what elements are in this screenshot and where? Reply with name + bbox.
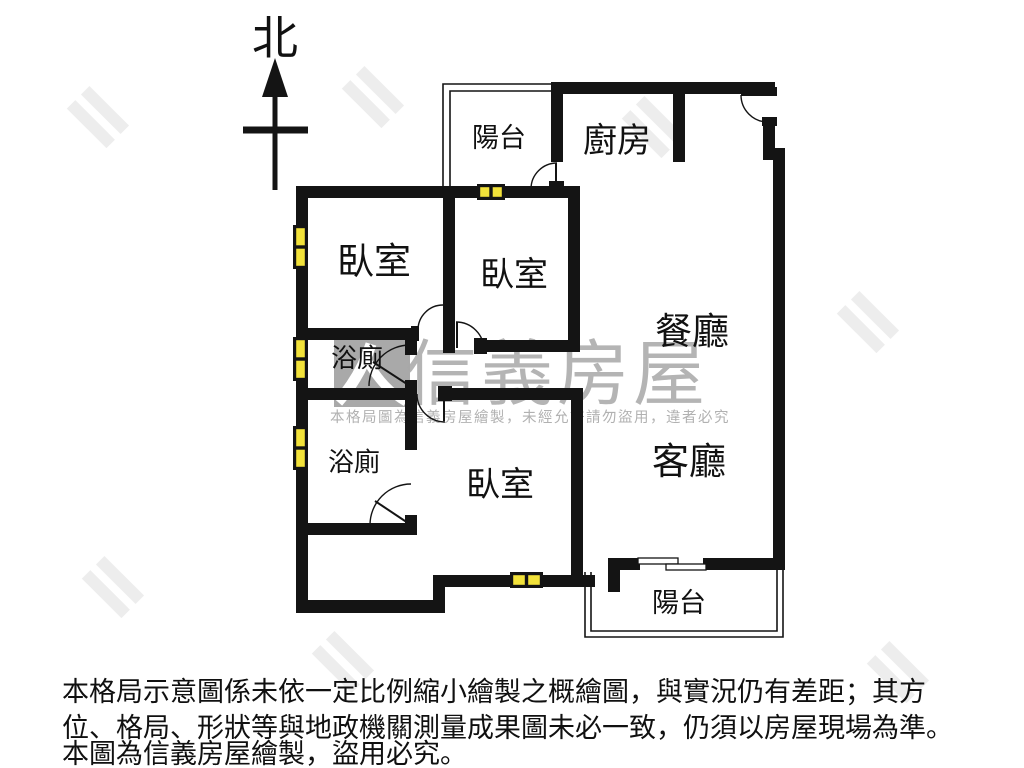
room-label-bedroom-3: 臥室 bbox=[466, 466, 534, 504]
window-bathroom-2 bbox=[293, 426, 308, 470]
door-arc-bedroom-1 bbox=[418, 305, 443, 330]
disclaimer: 本格局示意圖係未依一定比例縮小繪製之概繪圖，與實況仍有差距；其方 位、格局、形狀… bbox=[62, 677, 953, 768]
north-indicator: 北 bbox=[243, 13, 308, 190]
disclaimer-line-3: 本圖為信義房屋繪製，盜用必究。 bbox=[62, 739, 467, 768]
window-top bbox=[477, 184, 505, 200]
watermark-notice-text: 本格局圖為信義房屋繪製，未經允許請勿盜用，違者必究 bbox=[330, 408, 730, 426]
window-bedroom-1 bbox=[293, 225, 308, 269]
room-label-balcony-bottom: 陽台 bbox=[652, 588, 706, 618]
disclaimer-line-1: 本格局示意圖係未依一定比例縮小繪製之概繪圖，與實況仍有差距；其方 bbox=[62, 677, 926, 707]
floor-plan-page: 信義房屋 本格局圖為信義房屋繪製，未經允許請勿盜用，違者必究 北 bbox=[0, 0, 1024, 768]
room-label-living: 客廳 bbox=[652, 441, 726, 483]
room-label-bathroom-1: 浴廁 bbox=[331, 344, 383, 373]
north-label: 北 bbox=[252, 13, 298, 64]
room-label-bedroom-1: 臥室 bbox=[337, 241, 411, 283]
sliding-door bbox=[638, 558, 706, 570]
room-label-bathroom-2: 浴廁 bbox=[328, 448, 380, 477]
room-label-bedroom-2: 臥室 bbox=[480, 256, 548, 294]
door-arc-bathroom-2 bbox=[370, 484, 411, 525]
floor-plan-canvas: 信義房屋 本格局圖為信義房屋繪製，未經允許請勿盜用，違者必究 北 bbox=[0, 0, 1024, 768]
room-label-kitchen: 廚房 bbox=[583, 122, 651, 160]
room-label-balcony-top: 陽台 bbox=[472, 123, 526, 153]
window-bedroom-3 bbox=[510, 572, 543, 588]
window-bathroom-1 bbox=[293, 337, 308, 381]
room-label-dining: 餐廳 bbox=[655, 311, 729, 353]
